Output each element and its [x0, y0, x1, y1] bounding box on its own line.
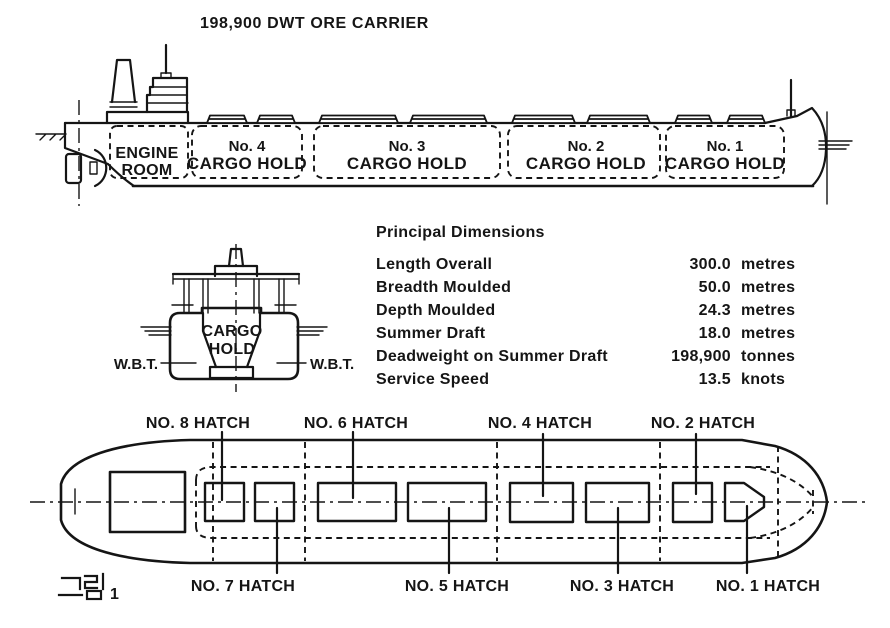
dim-unit: metres	[741, 279, 795, 296]
engine-room-label-line2: ROOM	[122, 162, 173, 179]
hangul-geu	[59, 578, 82, 595]
dim-unit: knots	[741, 371, 785, 388]
hold-3-name: CARGO HOLD	[347, 154, 467, 173]
hatch-2-label: NO. 2 HATCH	[651, 415, 755, 432]
midship-section-view: CARGO HOLD W.B.T. W.B.T.	[114, 244, 354, 392]
dim-unit: metres	[741, 256, 795, 273]
bridge-decks	[147, 87, 188, 103]
bow-waterline-mark	[819, 112, 852, 204]
hatch-4-label: NO. 4 HATCH	[488, 415, 592, 432]
side-profile-view: ENGINE ROOM No. 4 CARGO HOLD No. 3 CARGO…	[36, 45, 852, 206]
dim-label: Summer Draft	[376, 325, 486, 342]
deckhouse-base	[107, 112, 188, 123]
hatch-6	[318, 483, 396, 521]
ore-carrier-diagram: 198,900 DWT ORE CARRIER	[0, 0, 890, 628]
hatch-cover	[410, 116, 487, 124]
hatch-cover	[675, 116, 712, 124]
wbt-left-label: W.B.T.	[114, 356, 158, 373]
bulkhead-lines	[213, 442, 778, 561]
propeller-hub	[90, 162, 97, 174]
hatch-cover	[512, 116, 575, 124]
hatch-1-label: NO. 1 HATCH	[716, 578, 820, 595]
engine-room-label-line1: ENGINE	[115, 145, 178, 162]
dim-unit: tonnes	[741, 348, 795, 365]
hatch-3-label: NO. 3 HATCH	[570, 578, 674, 595]
hatch-cover	[587, 116, 650, 124]
dim-unit: metres	[741, 302, 795, 319]
hold-2-name: CARGO HOLD	[526, 154, 646, 173]
hatch-8-label: NO. 8 HATCH	[146, 415, 250, 432]
hatch-cover	[207, 116, 247, 124]
bow-stem	[765, 108, 826, 186]
hangul-rim-top	[85, 574, 103, 589]
hold-hopper-sides	[203, 313, 260, 367]
dim-unit: metres	[741, 325, 795, 342]
hangul-rim-bottom	[87, 591, 101, 599]
hatch-cover	[257, 116, 295, 124]
dim-label: Depth Moulded	[376, 302, 495, 319]
dim-label: Length Overall	[376, 256, 492, 273]
figure-caption: 1	[59, 574, 119, 603]
dim-label: Deadweight on Summer Draft	[376, 348, 608, 365]
figure-canvas: 198,900 DWT ORE CARRIER	[0, 0, 890, 628]
hatch-7-label: NO. 7 HATCH	[191, 578, 295, 595]
hold-1-name: CARGO HOLD	[665, 154, 785, 173]
figure-number: 1	[110, 586, 119, 603]
hold-4-name: CARGO HOLD	[187, 154, 307, 173]
double-bottom	[210, 367, 253, 378]
hatch-5-label: NO. 5 HATCH	[405, 578, 509, 595]
hold-3-number: No. 3	[389, 138, 426, 155]
section-hold-label-line1: CARGO	[201, 323, 262, 340]
deck-plan-view: NO. 8 HATCH NO. 6 HATCH NO. 4 HATCH NO. …	[30, 415, 868, 603]
hold-2-number: No. 2	[568, 138, 605, 155]
dimensions-heading: Principal Dimensions	[376, 224, 545, 241]
dim-label: Service Speed	[376, 371, 489, 388]
dim-value: 24.3	[699, 302, 731, 319]
hatch-cover	[727, 116, 765, 124]
dim-value: 198,900	[671, 348, 731, 365]
dim-label: Breadth Moulded	[376, 279, 511, 296]
dim-value: 13.5	[699, 371, 731, 388]
stern-waterline-mark	[36, 134, 66, 140]
hatch-5	[408, 483, 486, 521]
dim-value: 18.0	[699, 325, 731, 342]
dim-value: 300.0	[689, 256, 731, 273]
principal-dimensions: Principal Dimensions Length Overall 300.…	[376, 224, 795, 388]
section-hold-label-line2: HOLD	[209, 341, 256, 358]
hatch-6-label: NO. 6 HATCH	[304, 415, 408, 432]
dim-value: 50.0	[699, 279, 731, 296]
hold-4-number: No. 4	[229, 138, 266, 155]
hatch-cover	[319, 116, 398, 124]
funnel	[112, 60, 135, 102]
diagram-title: 198,900 DWT ORE CARRIER	[200, 15, 429, 32]
wbt-right-label: W.B.T.	[310, 356, 354, 373]
hold-1-number: No. 1	[707, 138, 744, 155]
